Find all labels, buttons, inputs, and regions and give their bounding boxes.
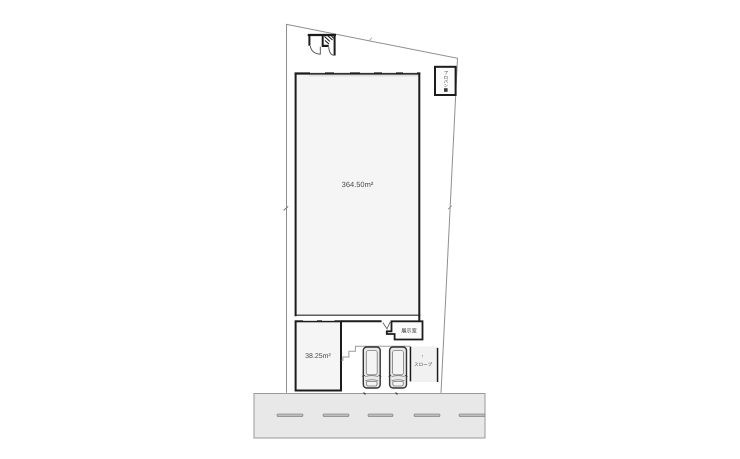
svg-text:スロープ: スロープ — [414, 362, 433, 367]
svg-text:364.50m²: 364.50m² — [342, 180, 374, 189]
svg-text:↑: ↑ — [421, 354, 423, 359]
svg-text:展示室: 展示室 — [401, 328, 417, 335]
svg-text:38.25m²: 38.25m² — [305, 353, 331, 360]
svg-text:ン: ン — [444, 83, 448, 88]
